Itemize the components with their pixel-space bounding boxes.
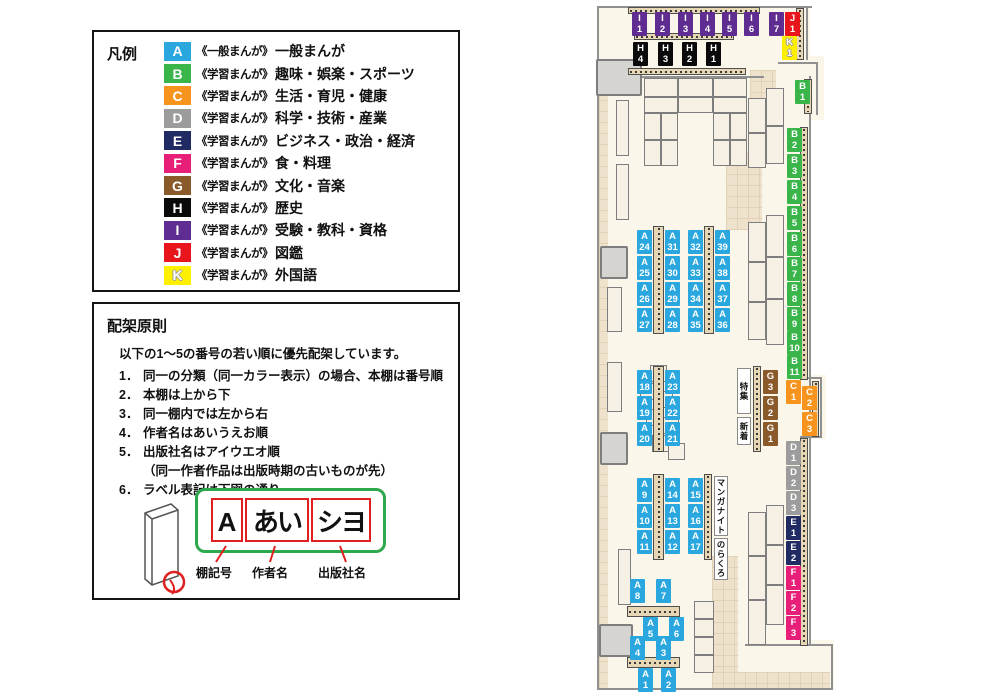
shelf-label-A3: A 3	[656, 636, 671, 660]
shelf-label-B5: B 5	[787, 206, 802, 230]
door	[599, 624, 633, 657]
shelf-unit	[748, 302, 766, 340]
shelf-label-D1: D 1	[786, 441, 801, 465]
shelf-label-A39: A 39	[715, 230, 730, 254]
shelf-label-A20: A 20	[637, 422, 652, 446]
shelf-label-G3: G 3	[763, 370, 778, 394]
shelf-label-A23: A 23	[665, 370, 680, 394]
shelf-label-I3: I 3	[678, 12, 693, 36]
shelf-label-A9: A 9	[637, 478, 652, 502]
shelf-label-A26: A 26	[637, 282, 652, 306]
shelf-label-B7: B 7	[787, 257, 802, 281]
shelf-label-G1: G 1	[763, 422, 778, 446]
shelf-unit	[661, 140, 678, 166]
shelf-strip-vertical	[704, 474, 712, 560]
shelf-label-A31: A 31	[665, 230, 680, 254]
shelf-label-B11: B 11	[787, 355, 802, 379]
area-label-のらくろ: のらくろ	[714, 538, 728, 580]
shelf-label-D2: D 2	[786, 466, 801, 490]
shelf-unit	[713, 113, 730, 140]
shelf-label-A29: A 29	[665, 282, 680, 306]
shelf-label-A28: A 28	[665, 308, 680, 332]
shelf-label-A18: A 18	[637, 370, 652, 394]
shelf-unit	[730, 113, 747, 140]
shelf-label-B3: B 3	[787, 154, 802, 178]
shelf-unit	[766, 299, 784, 345]
shelf-label-I4: I 4	[700, 12, 715, 36]
shelf-label-B4: B 4	[787, 180, 802, 204]
shelf-label-H2: H 2	[682, 42, 697, 66]
wall-segment	[597, 6, 599, 690]
shelf-label-A24: A 24	[637, 230, 652, 254]
shelf-label-E1: E 1	[786, 516, 801, 540]
shelf-label-A30: A 30	[665, 256, 680, 280]
shelf-unit	[748, 600, 766, 645]
shelf-label-A10: A 10	[637, 504, 652, 528]
shelf-label-A34: A 34	[688, 282, 703, 306]
shelf-label-A32: A 32	[688, 230, 703, 254]
wall-segment	[778, 62, 818, 64]
shelf-label-A15: A 15	[688, 478, 703, 502]
shelf-unit	[766, 88, 784, 126]
shelf-label-C2: C 2	[802, 386, 817, 410]
shelf-label-B9: B 9	[787, 307, 802, 331]
shelf-label-A38: A 38	[715, 256, 730, 280]
shelf-label-F3: F 3	[786, 616, 801, 640]
shelf-unit	[644, 97, 678, 113]
shelf-label-B6: B 6	[787, 232, 802, 256]
shelf-label-I7: I 7	[769, 12, 784, 36]
walkway	[712, 672, 830, 688]
shelf-unit	[766, 126, 784, 164]
wall-segment	[809, 76, 811, 646]
shelf-label-A35: A 35	[688, 308, 703, 332]
shelf-label-I6: I 6	[744, 12, 759, 36]
shelf-label-A11: A 11	[637, 530, 652, 554]
shelf-unit	[678, 97, 713, 113]
shelf-label-A37: A 37	[715, 282, 730, 306]
shelf-label-A8: A 8	[630, 579, 645, 603]
door	[600, 246, 628, 279]
shelf-strip-vertical	[653, 226, 664, 334]
shelf-unit	[748, 133, 766, 168]
shelf-label-A4: A 4	[630, 636, 645, 660]
shelf-strip-vertical	[800, 438, 808, 646]
wall-segment	[816, 62, 818, 115]
shelf-unit	[694, 619, 714, 637]
shelf-label-A19: A 19	[637, 396, 652, 420]
shelf-label-H4: H 4	[633, 42, 648, 66]
manga-corner-floor-guide: 凡例 A《一般まんが》一般まんがB《学習まんが》趣味・娯楽・スポーツC《学習まん…	[0, 0, 1000, 700]
shelf-label-A1: A 1	[638, 668, 653, 692]
shelf-unit	[713, 97, 747, 113]
shelf-label-A36: A 36	[715, 308, 730, 332]
shelf-unit	[644, 78, 678, 97]
shelf-label-J1: J 1	[785, 12, 800, 36]
shelf-unit	[766, 585, 784, 625]
shelf-label-A33: A 33	[688, 256, 703, 280]
shelf-unit	[748, 556, 766, 600]
shelf-unit	[694, 601, 714, 619]
door	[600, 432, 628, 465]
shelf-label-A25: A 25	[637, 256, 652, 280]
shelf-label-A16: A 16	[688, 504, 703, 528]
shelf-strip-vertical	[753, 366, 761, 452]
shelf-label-A7: A 7	[656, 579, 671, 603]
shelf-label-A2: A 2	[661, 668, 676, 692]
shelf-label-A27: A 27	[637, 308, 652, 332]
shelf-label-E2: E 2	[786, 541, 801, 565]
shelf-label-B2: B 2	[787, 128, 802, 152]
shelf-label-A13: A 13	[665, 504, 680, 528]
shelf-strip-horizontal	[628, 7, 760, 14]
shelf-label-B1: B 1	[795, 80, 810, 104]
shelf-unit	[748, 262, 766, 302]
shelf-unit	[616, 164, 629, 220]
shelf-label-A22: A 22	[665, 396, 680, 420]
area-label-新着: 新着	[737, 417, 751, 445]
shelf-label-F2: F 2	[786, 591, 801, 615]
shelf-label-I5: I 5	[722, 12, 737, 36]
shelf-label-I2: I 2	[655, 12, 670, 36]
shelf-label-D3: D 3	[786, 491, 801, 515]
shelf-unit	[644, 140, 661, 166]
wall-segment	[820, 377, 822, 438]
shelf-unit	[616, 100, 629, 156]
shelf-unit	[607, 287, 622, 332]
shelf-unit	[766, 545, 784, 585]
shelf-unit	[607, 362, 622, 412]
shelf-unit	[766, 505, 784, 545]
shelf-label-B10: B 10	[787, 331, 802, 355]
shelf-label-C3: C 3	[802, 412, 817, 436]
shelf-unit	[748, 222, 766, 262]
shelf-unit	[694, 637, 714, 655]
shelf-label-G2: G 2	[763, 396, 778, 420]
shelf-strip-vertical	[704, 226, 714, 334]
wall-segment	[831, 644, 833, 690]
shelf-unit	[766, 215, 784, 257]
shelf-strip-horizontal	[627, 606, 680, 617]
shelf-unit	[748, 512, 766, 556]
shelf-label-B8: B 8	[787, 282, 802, 306]
shelf-label-H3: H 3	[658, 42, 673, 66]
shelf-label-I1: I 1	[632, 12, 647, 36]
shelf-strip-vertical	[653, 474, 664, 560]
shelf-label-H1: H 1	[706, 42, 721, 66]
area-label-マンガナイト: マンガナイト	[714, 476, 728, 536]
wall-segment	[597, 688, 833, 690]
shelf-label-F1: F 1	[786, 566, 801, 590]
shelf-unit	[694, 655, 714, 673]
floor-map: I 1I 2I 3I 4I 5I 6I 7J 1K 1H 4H 3H 2H 1B…	[0, 0, 1000, 700]
shelf-label-A21: A 21	[665, 422, 680, 446]
shelf-unit	[766, 257, 784, 299]
shelf-label-C1: C 1	[786, 380, 801, 404]
shelf-label-A17: A 17	[688, 530, 703, 554]
shelf-strip-horizontal	[628, 68, 746, 75]
wall-segment	[806, 6, 808, 60]
shelf-label-A14: A 14	[665, 478, 680, 502]
shelf-unit	[713, 78, 747, 97]
shelf-label-A6: A 6	[669, 617, 684, 641]
shelf-unit	[748, 98, 766, 133]
shelf-strip-vertical	[653, 366, 664, 452]
shelf-unit	[730, 140, 747, 166]
shelf-unit	[713, 140, 730, 166]
shelf-label-K1: K 1	[782, 36, 797, 60]
shelf-unit	[644, 113, 661, 140]
shelf-unit	[678, 78, 713, 97]
area-label-特集: 特集	[737, 368, 751, 414]
shelf-label-A12: A 12	[665, 530, 680, 554]
shelf-unit	[661, 113, 678, 140]
